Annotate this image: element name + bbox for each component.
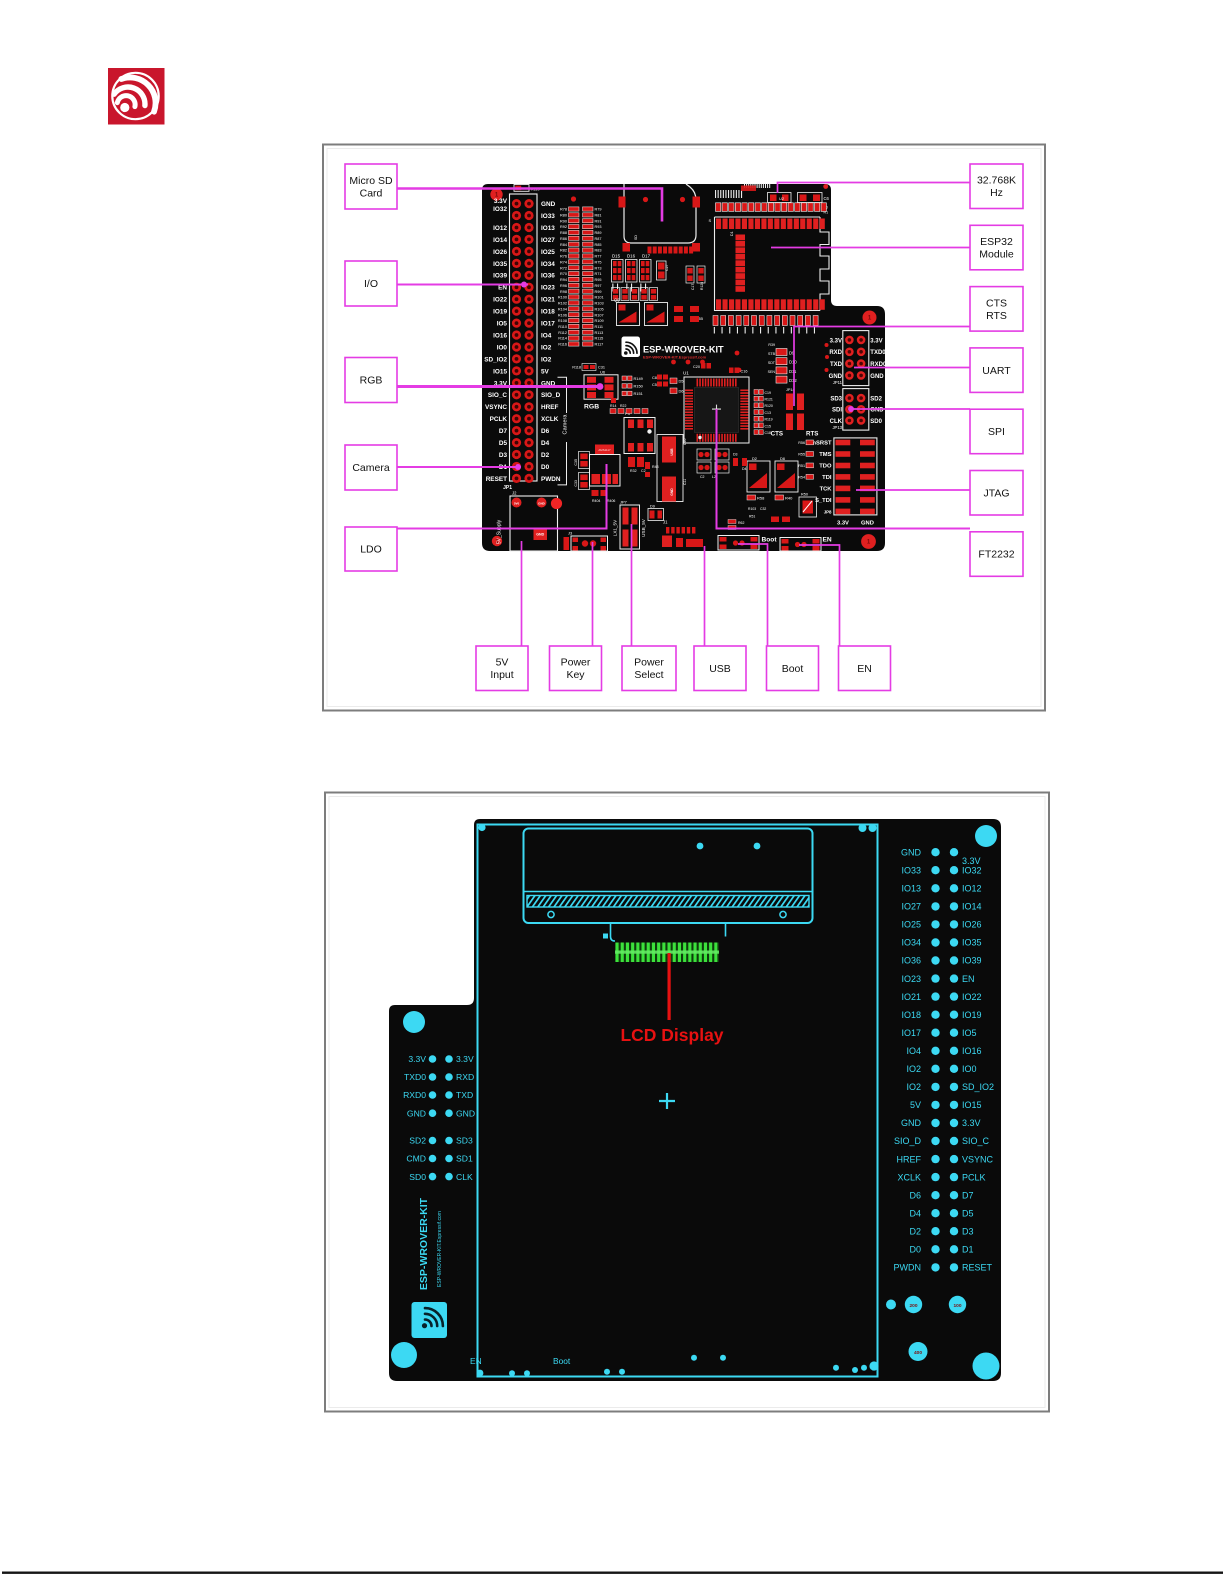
- svg-text:R113: R113: [595, 331, 604, 335]
- svg-text:R106: R106: [558, 313, 567, 317]
- svg-text:R77: R77: [595, 255, 602, 259]
- svg-text:R109: R109: [595, 319, 604, 323]
- svg-text:IO14: IO14: [493, 237, 507, 244]
- svg-text:Micro SD: Micro SD: [349, 175, 393, 187]
- svg-text:5V: 5V: [910, 1100, 921, 1110]
- svg-text:R80: R80: [560, 213, 567, 217]
- svg-text:IO0: IO0: [497, 344, 508, 351]
- svg-text:IO34: IO34: [901, 938, 921, 948]
- svg-text:TXD: TXD: [830, 362, 843, 368]
- svg-text:RTS: RTS: [806, 431, 818, 438]
- svg-text:IO34: IO34: [541, 261, 555, 268]
- svg-text:IO14: IO14: [962, 902, 982, 912]
- svg-text:Boot: Boot: [782, 663, 804, 675]
- svg-text:IO36: IO36: [541, 273, 555, 280]
- svg-text:R75: R75: [595, 260, 602, 264]
- svg-text:IO32: IO32: [493, 206, 507, 213]
- svg-text:IO12: IO12: [493, 225, 507, 232]
- svg-text:C5: C5: [652, 382, 657, 387]
- svg-text:SIO_C: SIO_C: [488, 392, 508, 399]
- svg-text:CLK: CLK: [456, 1172, 473, 1182]
- svg-text:Card: Card: [360, 187, 383, 199]
- svg-text:Input: Input: [490, 669, 513, 681]
- svg-text:D5: D5: [962, 1208, 974, 1218]
- svg-text:D7: D7: [499, 428, 508, 435]
- svg-text:R55: R55: [798, 453, 805, 457]
- svg-text:Key: Key: [566, 669, 585, 681]
- svg-text:C19: C19: [765, 391, 771, 395]
- svg-text:CMD: CMD: [406, 1154, 426, 1164]
- svg-text:IO33: IO33: [541, 213, 555, 220]
- svg-text:D4: D4: [541, 440, 550, 447]
- svg-text:D0: D0: [909, 1245, 921, 1255]
- svg-text:R404: R404: [592, 499, 600, 503]
- svg-text:IO0: IO0: [962, 1064, 977, 1074]
- svg-text:IO27: IO27: [901, 902, 921, 912]
- svg-text:SIO_D: SIO_D: [541, 392, 561, 399]
- svg-text:200: 200: [909, 1303, 917, 1309]
- svg-text:RGB: RGB: [360, 375, 383, 387]
- svg-text:STB: STB: [768, 352, 776, 356]
- svg-text:R71: R71: [595, 272, 602, 276]
- svg-text:mSRST: mSRST: [811, 441, 832, 447]
- svg-text:R81: R81: [595, 213, 602, 217]
- svg-text:FT2232: FT2232: [978, 549, 1014, 561]
- svg-text:R87: R87: [595, 237, 602, 241]
- svg-text:R91: R91: [595, 219, 602, 223]
- svg-text:R86: R86: [560, 237, 567, 241]
- svg-text:SD: SD: [634, 235, 638, 240]
- svg-text:USB: USB: [670, 448, 674, 456]
- svg-text:EN: EN: [823, 537, 832, 544]
- svg-text:R54: R54: [798, 476, 805, 480]
- svg-text:IO39: IO39: [962, 956, 982, 966]
- svg-text:R115: R115: [595, 337, 604, 341]
- svg-text:PWDN: PWDN: [541, 476, 561, 483]
- svg-text:Power: Power: [634, 657, 664, 669]
- svg-text:IO23: IO23: [541, 285, 555, 292]
- svg-text:JP7: JP7: [620, 500, 628, 505]
- svg-text:IO16: IO16: [962, 1046, 982, 1056]
- svg-text:RXD0: RXD0: [403, 1090, 426, 1100]
- svg-text:R88: R88: [560, 231, 567, 235]
- svg-text:IO5: IO5: [962, 1028, 977, 1038]
- svg-text:32.768K: 32.768K: [977, 175, 1016, 187]
- svg-text:J2: J2: [512, 491, 517, 496]
- svg-text:3.3V: 3.3V: [962, 1118, 981, 1128]
- svg-text:IO16: IO16: [493, 332, 507, 339]
- svg-text:R85: R85: [595, 243, 602, 247]
- svg-text:R406: R406: [607, 499, 615, 503]
- svg-text:SPI: SPI: [988, 426, 1005, 438]
- svg-text:RXD: RXD: [456, 1072, 474, 1082]
- svg-text:3.3V: 3.3V: [870, 338, 882, 344]
- svg-text:R89: R89: [595, 231, 602, 235]
- svg-text:R82: R82: [560, 249, 567, 253]
- svg-text:R51: R51: [798, 464, 805, 468]
- svg-text:400: 400: [914, 1350, 922, 1356]
- svg-text:R112: R112: [558, 331, 567, 335]
- svg-text:R43: R43: [652, 465, 659, 469]
- svg-text:HREF: HREF: [541, 404, 558, 411]
- svg-text:HREF: HREF: [897, 1154, 922, 1164]
- svg-text:D0: D0: [541, 464, 550, 471]
- svg-text:R92: R92: [560, 225, 567, 229]
- svg-text:D5: D5: [679, 379, 684, 384]
- svg-text:R70: R70: [560, 272, 567, 276]
- svg-text:GND: GND: [541, 201, 556, 208]
- svg-text:JTAG: JTAG: [983, 487, 1009, 499]
- svg-text:TXD: TXD: [456, 1090, 473, 1100]
- svg-text:IO2: IO2: [906, 1082, 921, 1092]
- svg-text:Select: Select: [634, 669, 663, 681]
- svg-text:IO15: IO15: [493, 368, 507, 375]
- svg-text:GND: GND: [407, 1108, 426, 1118]
- svg-text:R78: R78: [560, 208, 567, 212]
- svg-text:Module: Module: [979, 249, 1014, 261]
- svg-text:R102: R102: [558, 302, 567, 306]
- svg-text:R32: R32: [630, 469, 637, 473]
- svg-text:GND: GND: [829, 374, 843, 380]
- svg-text:RESET: RESET: [962, 1263, 993, 1273]
- svg-text:IO13: IO13: [541, 225, 555, 232]
- svg-text:IO5: IO5: [497, 321, 508, 328]
- svg-text:R58: R58: [757, 496, 765, 501]
- svg-text:R98: R98: [560, 290, 567, 294]
- svg-text:D6: D6: [541, 428, 550, 435]
- svg-text:SD_IO2: SD_IO2: [962, 1082, 994, 1092]
- svg-text:Boot: Boot: [762, 537, 778, 544]
- svg-text:LCD Display: LCD Display: [620, 1025, 723, 1045]
- svg-text:S: S: [709, 218, 712, 223]
- svg-text:CTS: CTS: [771, 431, 783, 438]
- svg-text:D2: D2: [541, 452, 550, 459]
- svg-text:R103: R103: [748, 507, 756, 511]
- svg-text:R93: R93: [595, 225, 602, 229]
- svg-text:ESP-WROVER-KIT.Espressif.com: ESP-WROVER-KIT.Espressif.com: [437, 1211, 443, 1287]
- svg-text:XCLK: XCLK: [541, 416, 559, 423]
- svg-text:IO27: IO27: [541, 237, 555, 244]
- svg-text:IO35: IO35: [962, 938, 982, 948]
- svg-text:RGB: RGB: [584, 404, 599, 411]
- svg-text:R94: R94: [560, 278, 567, 282]
- svg-text:R101: R101: [595, 296, 604, 300]
- svg-text:Camera: Camera: [563, 414, 569, 435]
- svg-text:R95: R95: [595, 278, 602, 282]
- svg-text:SD1: SD1: [456, 1154, 473, 1164]
- svg-text:IO18: IO18: [541, 309, 555, 316]
- svg-text:C27: C27: [665, 264, 669, 271]
- svg-text:100: 100: [953, 1303, 961, 1309]
- svg-text:SD3: SD3: [830, 397, 842, 403]
- svg-text:D4: D4: [742, 467, 747, 471]
- svg-text:SD3: SD3: [456, 1136, 473, 1146]
- svg-text:SD_IO2: SD_IO2: [484, 356, 507, 363]
- svg-text:R40: R40: [785, 496, 793, 501]
- svg-text:IO23: IO23: [901, 974, 921, 984]
- svg-text:3.3V: 3.3V: [456, 1054, 474, 1064]
- svg-text:C16: C16: [741, 370, 748, 374]
- svg-text:CLK: CLK: [830, 419, 843, 425]
- svg-text:PCLK: PCLK: [962, 1172, 986, 1182]
- svg-text:3.3V: 3.3V: [830, 338, 842, 344]
- svg-text:D15: D15: [612, 254, 621, 259]
- svg-text:CTS: CTS: [986, 297, 1007, 309]
- svg-text:U2: U2: [779, 196, 785, 201]
- svg-text:IO13: IO13: [901, 884, 921, 894]
- svg-text:IO22: IO22: [493, 297, 507, 304]
- svg-text:SEN: SEN: [768, 370, 776, 374]
- svg-text:R104: R104: [558, 307, 567, 311]
- svg-text:SD2: SD2: [409, 1136, 426, 1146]
- svg-text:L2: L2: [712, 475, 716, 479]
- svg-text:AMS1117: AMS1117: [598, 448, 611, 452]
- svg-text:C33: C33: [574, 480, 578, 487]
- svg-text:IO35: IO35: [493, 261, 507, 268]
- svg-text:D4: D4: [909, 1208, 921, 1218]
- svg-text:C6: C6: [824, 196, 830, 201]
- svg-text:Q5: Q5: [614, 298, 620, 303]
- svg-text:IO19: IO19: [962, 1010, 982, 1020]
- svg-text:C32: C32: [760, 507, 766, 511]
- svg-text:R72: R72: [560, 266, 567, 270]
- svg-text:VSYNC: VSYNC: [962, 1154, 994, 1164]
- svg-text:IO19: IO19: [493, 309, 507, 316]
- svg-text:IO2: IO2: [541, 356, 552, 363]
- svg-text:IO32: IO32: [962, 865, 982, 875]
- svg-text:SD0: SD0: [870, 419, 882, 425]
- svg-text:5V_Supply: 5V_Supply: [497, 519, 503, 544]
- svg-text:IO26: IO26: [493, 249, 507, 256]
- svg-text:D16: D16: [627, 254, 636, 259]
- svg-text:R62: R62: [738, 521, 744, 525]
- svg-text:SD2: SD2: [870, 397, 882, 403]
- svg-text:LX1_5V: LX1_5V: [613, 519, 618, 536]
- svg-text:Hz: Hz: [990, 187, 1003, 199]
- svg-text:S_TDI: S_TDI: [815, 498, 832, 504]
- svg-text:D2: D2: [752, 456, 757, 461]
- svg-text:D5: D5: [499, 440, 508, 447]
- svg-text:R120: R120: [765, 404, 773, 408]
- svg-text:R118: R118: [572, 366, 581, 370]
- svg-text:TCK: TCK: [820, 487, 833, 493]
- svg-text:ESP32: ESP32: [980, 236, 1013, 248]
- svg-text:TXD0: TXD0: [404, 1072, 426, 1082]
- svg-text:D9: D9: [650, 505, 655, 509]
- svg-text:J1: J1: [663, 520, 668, 525]
- svg-text:SD0: SD0: [409, 1172, 426, 1182]
- svg-text:R76: R76: [560, 255, 567, 259]
- svg-text:R107: R107: [595, 313, 604, 317]
- svg-text:PWDN: PWDN: [894, 1263, 922, 1273]
- svg-text:IO18: IO18: [901, 1010, 921, 1020]
- svg-text:Power: Power: [561, 657, 591, 669]
- svg-text:U6: U6: [600, 370, 606, 375]
- svg-text:C20: C20: [693, 365, 700, 369]
- svg-text:GND: GND: [670, 488, 674, 496]
- svg-text:3.3V: 3.3V: [408, 1054, 426, 1064]
- svg-text:SW2: SW2: [712, 551, 721, 556]
- svg-text:IO26: IO26: [962, 920, 982, 930]
- svg-text:IO4: IO4: [541, 332, 552, 339]
- svg-text:IO25: IO25: [541, 249, 555, 256]
- svg-text:R79: R79: [595, 208, 602, 212]
- svg-text:C8: C8: [652, 375, 657, 380]
- svg-text:R116: R116: [558, 343, 567, 347]
- svg-text:IO4: IO4: [906, 1046, 921, 1056]
- svg-text:R105: R105: [595, 307, 604, 311]
- svg-text:SDI: SDI: [832, 408, 842, 414]
- svg-text:R100: R100: [558, 296, 567, 300]
- svg-text:IO21: IO21: [541, 297, 555, 304]
- svg-text:R149: R149: [634, 376, 643, 381]
- svg-text:R51: R51: [749, 515, 755, 519]
- svg-text:I/O: I/O: [364, 278, 378, 290]
- svg-text:IO2: IO2: [541, 344, 552, 351]
- svg-text:C2: C2: [641, 469, 646, 473]
- svg-text:D11: D11: [789, 369, 797, 374]
- svg-text:R22: R22: [620, 404, 626, 408]
- svg-text:R56: R56: [798, 441, 805, 445]
- svg-text:EN: EN: [857, 663, 872, 675]
- svg-text:TXD0: TXD0: [870, 350, 886, 356]
- svg-text:C35: C35: [574, 459, 578, 466]
- svg-text:R119: R119: [765, 418, 773, 422]
- svg-text:R90: R90: [560, 219, 567, 223]
- svg-text:Camera: Camera: [352, 462, 390, 474]
- svg-text:D6: D6: [679, 389, 684, 394]
- svg-text:R84: R84: [560, 243, 567, 247]
- svg-text:SDT: SDT: [768, 361, 776, 365]
- svg-text:ESP-WROVER-KIT: ESP-WROVER-KIT: [418, 1197, 430, 1290]
- svg-text:R97: R97: [595, 284, 602, 288]
- svg-text:GND: GND: [861, 521, 874, 527]
- svg-text:3.3V: 3.3V: [837, 521, 849, 527]
- svg-text:SIO_C: SIO_C: [962, 1136, 990, 1146]
- svg-text:IO12: IO12: [962, 884, 982, 894]
- svg-text:TDI: TDI: [822, 475, 832, 481]
- svg-text:ESP-WROVER-KIT: ESP-WROVER-KIT: [643, 345, 724, 355]
- svg-text:IO17: IO17: [901, 1028, 921, 1038]
- svg-text:5V: 5V: [496, 657, 509, 669]
- svg-text:JP11: JP11: [833, 380, 843, 385]
- svg-text:IO39: IO39: [493, 273, 507, 280]
- svg-text:IO21: IO21: [901, 992, 921, 1002]
- svg-text:R74: R74: [560, 260, 567, 264]
- svg-text:JP1: JP1: [503, 485, 512, 491]
- svg-text:R14: R14: [610, 404, 616, 408]
- svg-text:R103: R103: [595, 302, 604, 306]
- svg-text:R151: R151: [634, 391, 643, 396]
- svg-text:5V: 5V: [541, 368, 550, 375]
- svg-text:GND: GND: [901, 847, 922, 857]
- svg-text:D17: D17: [642, 254, 651, 259]
- svg-text:D3: D3: [733, 453, 738, 457]
- svg-text:R96: R96: [560, 284, 567, 288]
- svg-text:SW1: SW1: [756, 550, 765, 555]
- svg-text:IO22: IO22: [962, 992, 982, 1002]
- svg-text:GND: GND: [538, 501, 546, 505]
- svg-text:C13: C13: [765, 411, 771, 415]
- svg-text:VSYNC: VSYNC: [485, 404, 507, 411]
- svg-text:D3: D3: [962, 1226, 974, 1236]
- svg-text:ESP-WROVER-KIT.Espressif.com: ESP-WROVER-KIT.Espressif.com: [643, 355, 707, 360]
- svg-text:R111: R111: [595, 325, 604, 329]
- svg-text:R117: R117: [595, 343, 604, 347]
- svg-text:C17: C17: [691, 284, 695, 290]
- svg-text:C15: C15: [765, 424, 771, 428]
- svg-text:JP13: JP13: [832, 425, 842, 430]
- svg-text:R114: R114: [558, 337, 567, 341]
- svg-text:U1: U1: [683, 371, 689, 376]
- svg-text:D3: D3: [499, 452, 508, 459]
- svg-text:R126: R126: [700, 282, 704, 290]
- svg-text:Boot: Boot: [553, 1356, 571, 1366]
- svg-text:R150: R150: [634, 384, 644, 389]
- svg-text:IO33: IO33: [901, 865, 921, 875]
- svg-text:D6: D6: [909, 1190, 921, 1200]
- svg-text:D1: D1: [730, 231, 734, 236]
- svg-text:R39: R39: [768, 343, 775, 347]
- svg-text:EN: EN: [470, 1356, 482, 1366]
- svg-text:5V0: 5V0: [514, 501, 520, 505]
- svg-text:GND: GND: [901, 1118, 922, 1128]
- svg-text:R83: R83: [595, 249, 602, 253]
- svg-text:C2: C2: [700, 475, 705, 479]
- svg-text:3.3V: 3.3V: [962, 856, 981, 866]
- svg-text:GND: GND: [870, 374, 884, 380]
- svg-text:C10: C10: [683, 439, 687, 445]
- svg-text:USB_5V: USB_5V: [641, 518, 646, 537]
- svg-text:RESET: RESET: [486, 476, 507, 483]
- svg-text:EN: EN: [498, 285, 507, 292]
- svg-text:GND: GND: [456, 1108, 475, 1118]
- svg-text:D8: D8: [780, 456, 785, 461]
- svg-text:RXD: RXD: [829, 350, 842, 356]
- svg-text:PCLK: PCLK: [490, 416, 508, 423]
- svg-text:USB: USB: [709, 663, 731, 675]
- svg-text:D1: D1: [962, 1245, 974, 1255]
- svg-text:D2: D2: [909, 1226, 921, 1236]
- svg-text:LDO: LDO: [360, 544, 382, 556]
- svg-text:IO25: IO25: [901, 920, 921, 930]
- svg-text:C11: C11: [683, 479, 687, 485]
- svg-text:UART: UART: [982, 365, 1011, 377]
- svg-text:RTS: RTS: [986, 310, 1007, 322]
- svg-text:R108: R108: [558, 319, 567, 323]
- svg-text:R110: R110: [558, 325, 567, 329]
- svg-text:D7: D7: [962, 1190, 974, 1200]
- svg-text:TDO: TDO: [819, 464, 832, 470]
- svg-text:IO15: IO15: [962, 1100, 982, 1110]
- svg-text:R73: R73: [595, 266, 602, 270]
- svg-text:EN: EN: [962, 974, 975, 984]
- svg-text:XCLK: XCLK: [897, 1172, 921, 1182]
- svg-text:IO36: IO36: [901, 956, 921, 966]
- svg-text:IO17: IO17: [541, 321, 555, 328]
- svg-text:3.3V: 3.3V: [494, 198, 508, 205]
- svg-text:SIO_D: SIO_D: [894, 1136, 922, 1146]
- svg-text:R50: R50: [801, 493, 808, 497]
- svg-text:GND: GND: [536, 533, 544, 537]
- svg-text:R121: R121: [765, 398, 773, 402]
- svg-text:TMS: TMS: [819, 452, 831, 458]
- svg-text:IO2: IO2: [906, 1064, 921, 1074]
- svg-text:R99: R99: [595, 290, 602, 294]
- svg-text:JP8: JP8: [824, 510, 832, 515]
